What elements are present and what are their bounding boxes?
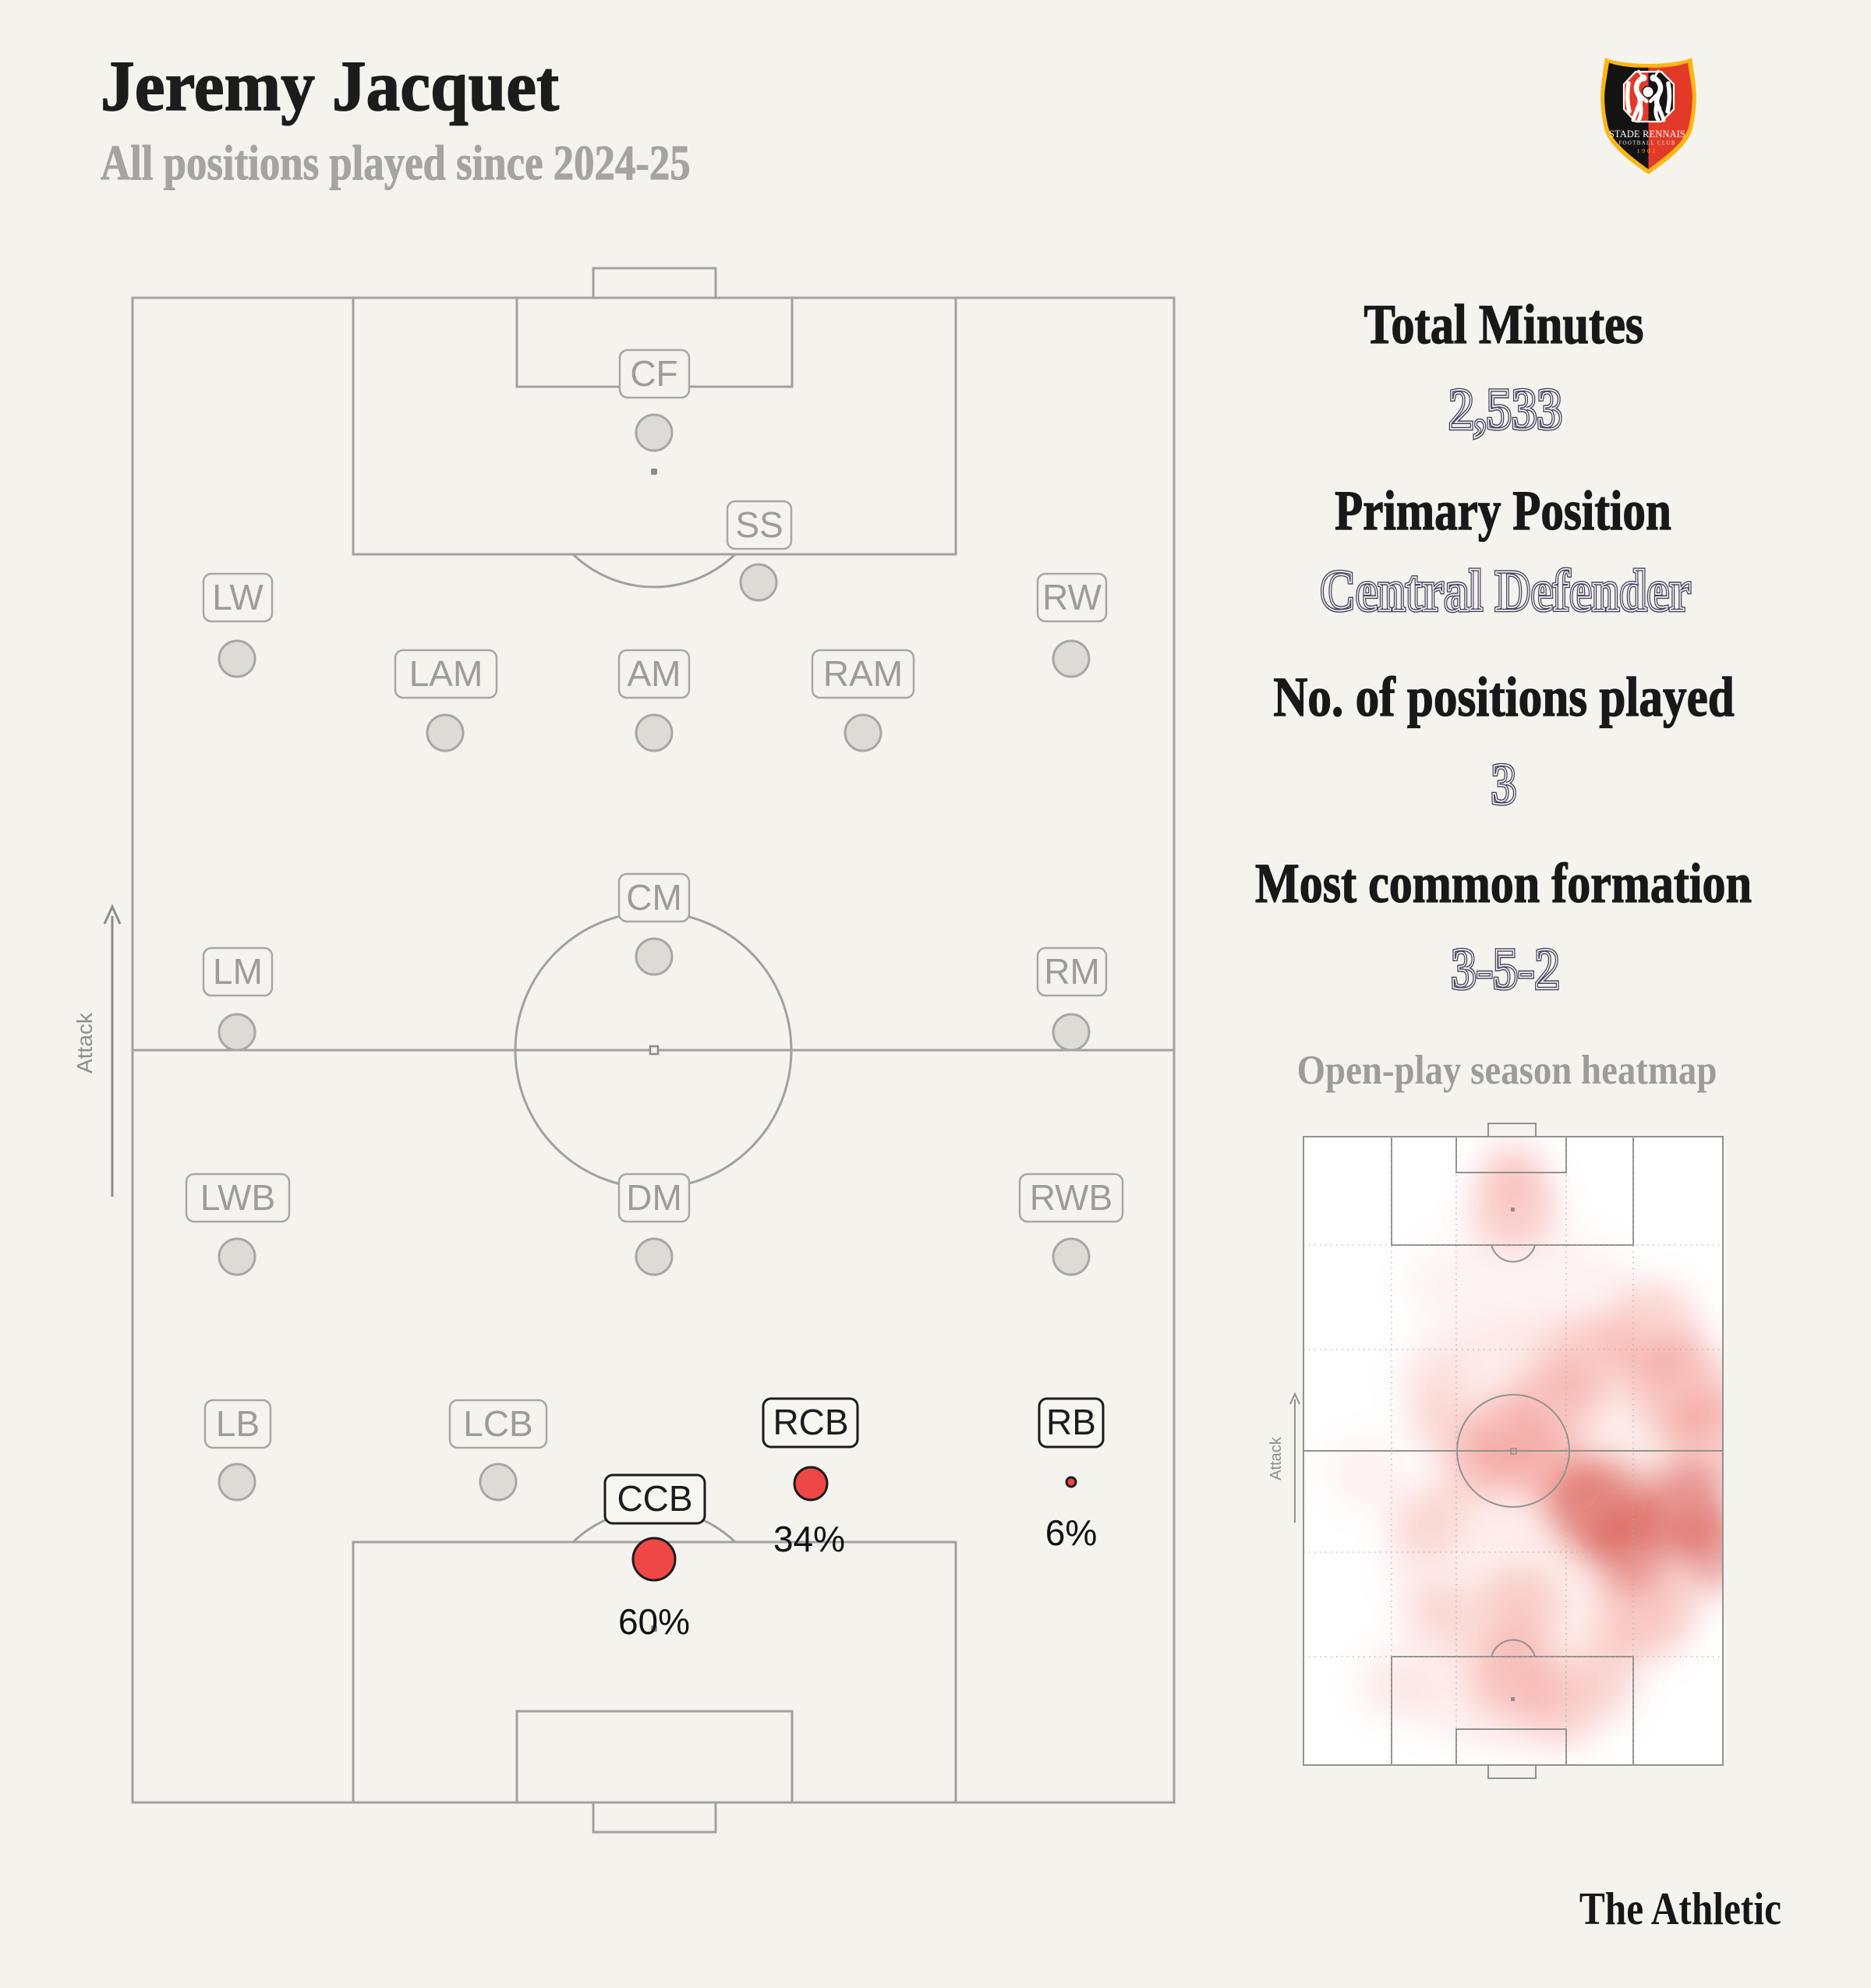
svg-text:LWB: LWB <box>200 1177 275 1218</box>
svg-text:Central Defender: Central Defender <box>1320 559 1691 624</box>
svg-text:RB: RB <box>1046 1402 1096 1442</box>
svg-text:FOOTBALL CLUB: FOOTBALL CLUB <box>1618 140 1676 147</box>
svg-text:CCB: CCB <box>617 1478 692 1519</box>
svg-text:All positions played since 202: All positions played since 2024-25 <box>101 136 691 190</box>
svg-text:60%: 60% <box>618 1601 690 1642</box>
svg-text:RAM: RAM <box>823 653 903 694</box>
svg-text:2,533: 2,533 <box>1448 378 1562 442</box>
svg-text:LB: LB <box>216 1403 260 1444</box>
svg-text:AM: AM <box>628 653 681 694</box>
svg-text:Total Minutes: Total Minutes <box>1364 294 1644 356</box>
svg-text:SS: SS <box>735 504 783 545</box>
svg-text:STADE RENNAIS: STADE RENNAIS <box>1609 129 1685 140</box>
svg-text:RWB: RWB <box>1030 1177 1113 1218</box>
svg-text:Jeremy Jacquet: Jeremy Jacquet <box>101 47 559 126</box>
svg-text:LM: LM <box>213 951 263 992</box>
svg-text:Open-play season heatmap: Open-play season heatmap <box>1297 1046 1717 1092</box>
svg-text:CF: CF <box>630 353 677 394</box>
svg-text:1901: 1901 <box>1637 147 1658 154</box>
svg-text:CM: CM <box>626 877 682 918</box>
svg-text:LW: LW <box>212 577 263 617</box>
svg-text:3: 3 <box>1491 753 1516 817</box>
svg-text:RCB: RCB <box>773 1402 848 1442</box>
svg-text:Primary Position: Primary Position <box>1335 480 1671 543</box>
svg-text:The Athletic: The Athletic <box>1579 1884 1781 1934</box>
svg-text:Attack: Attack <box>1268 1436 1285 1480</box>
svg-text:6%: 6% <box>1045 1512 1097 1553</box>
svg-text:RM: RM <box>1044 951 1100 992</box>
svg-text:No. of positions played: No. of positions played <box>1273 666 1735 728</box>
svg-text:LAM: LAM <box>409 653 483 694</box>
svg-text:34%: 34% <box>773 1519 845 1559</box>
svg-text:LCB: LCB <box>463 1403 532 1444</box>
svg-text:DM: DM <box>626 1177 682 1218</box>
svg-text:Most common formation: Most common formation <box>1255 853 1752 914</box>
svg-text:3-5-2: 3-5-2 <box>1451 937 1559 1002</box>
svg-text:Attack: Attack <box>73 1012 97 1074</box>
svg-text:RW: RW <box>1042 577 1102 617</box>
